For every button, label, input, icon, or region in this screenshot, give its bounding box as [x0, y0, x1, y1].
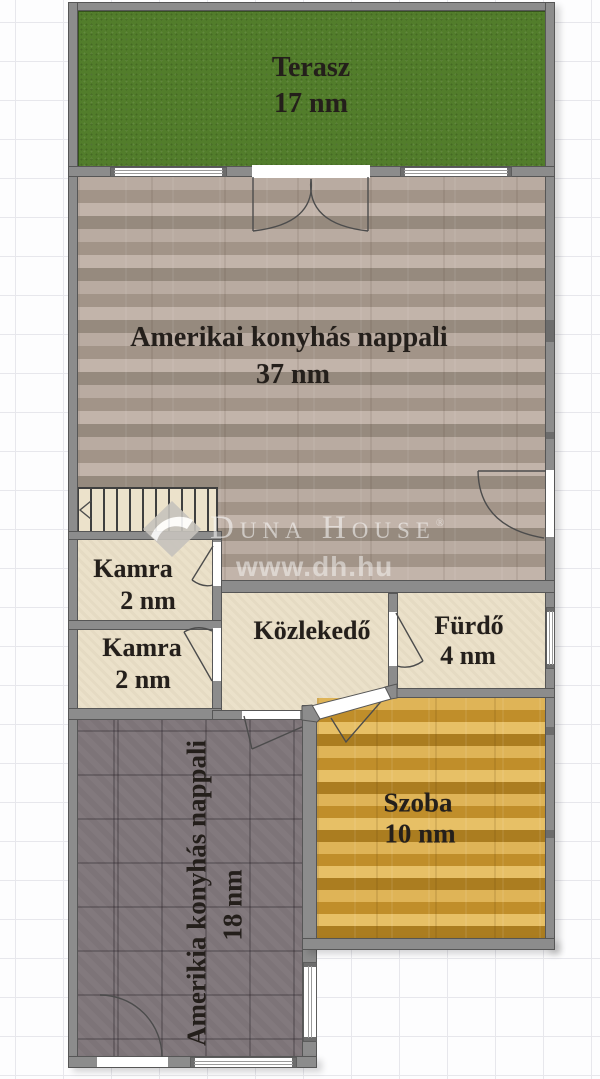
furdo-label: Fürdő	[434, 613, 503, 639]
kozlekedo-label: Közlekedő	[254, 618, 371, 644]
dunahouse-logo-icon	[143, 501, 201, 557]
floor-plan: Duna House® www.dh.hu Terasz 17 nm Ameri…	[0, 0, 600, 1079]
szoba-label: Szoba	[383, 790, 452, 817]
terasz-area: 17 nm	[274, 90, 348, 118]
nappali-label: Amerikai konyhás nappali	[130, 324, 447, 352]
registered-mark: ®	[436, 517, 444, 529]
kamra1-label: Kamra	[93, 556, 172, 582]
konyha-area: 18 nm	[220, 869, 247, 940]
konyha-label: Amerikia konyhás nappali	[184, 740, 211, 1046]
kamra2-label: Kamra	[102, 635, 181, 661]
watermark-brand: Duna House®	[210, 510, 444, 547]
kamra2-area: 2 nm	[115, 667, 171, 693]
szoba-area: 10 nm	[384, 821, 455, 848]
furdo-area: 4 nm	[440, 643, 496, 669]
terasz-label: Terasz	[272, 54, 350, 82]
watermark-url: www.dh.hu	[236, 551, 393, 583]
nappali-area: 37 nm	[256, 361, 330, 389]
kamra1-area: 2 nm	[120, 588, 176, 614]
